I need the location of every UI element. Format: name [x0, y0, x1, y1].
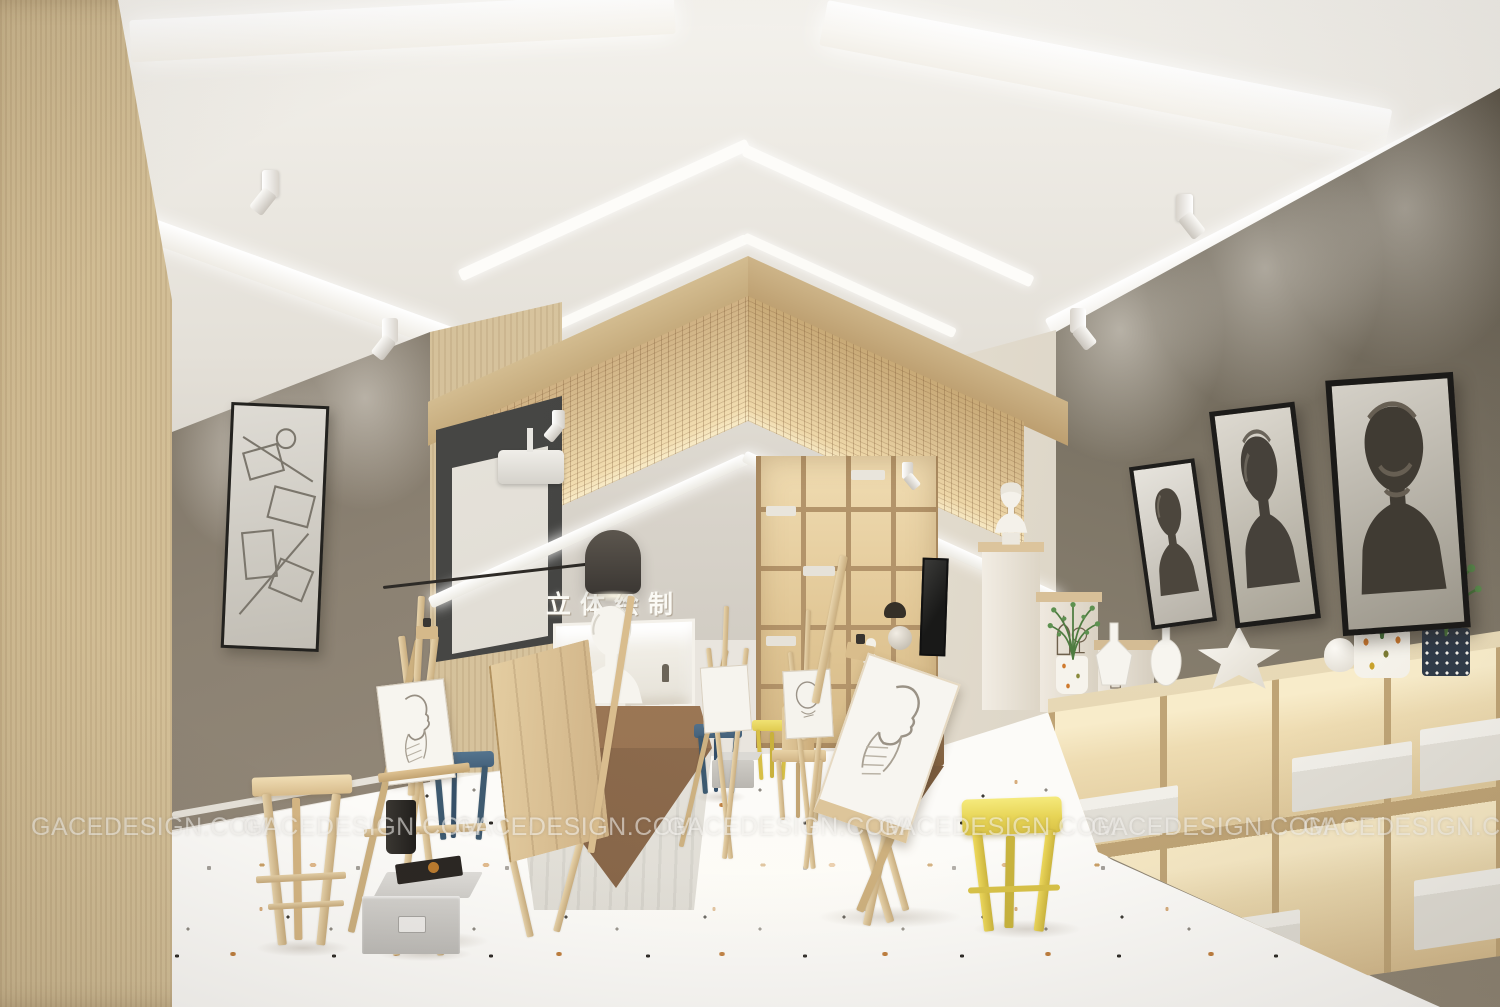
watermark: GACEDESIGN.COM: [243, 813, 482, 842]
plaster-bust-steps: [984, 478, 1038, 552]
stone-slab: [1292, 741, 1412, 813]
frame-bust-sketch: [1325, 372, 1471, 636]
shelf-slab: [803, 566, 835, 576]
easel-clamp: [416, 626, 438, 639]
shelving-art-frame: [919, 558, 948, 657]
watermark: GACEDESIGN.COM: [1303, 813, 1500, 842]
shelf-dome-lamp: [884, 602, 906, 618]
chair-leg: [796, 762, 800, 818]
easel-knob: [423, 618, 431, 627]
projector-mount: [527, 428, 533, 452]
shelf-slab: [766, 506, 796, 516]
white-vase-flask: [1144, 622, 1188, 692]
niche-bottle: [662, 664, 669, 682]
white-vase-round: [1324, 638, 1356, 672]
easel-knob: [856, 634, 865, 644]
display-step: [982, 548, 1040, 710]
stone-slab: [1414, 862, 1500, 951]
watermark: GACEDESIGN.COM: [879, 813, 1118, 842]
watermark: GACEDESIGN.COM: [667, 813, 906, 842]
white-vase-angular: [1090, 620, 1138, 692]
projector: [498, 450, 564, 484]
box-label: [398, 916, 426, 933]
art-studio-render: 立体绘制: [0, 0, 1500, 1007]
wall-lamp-shade: [585, 530, 641, 594]
shelf-slab: [766, 636, 796, 646]
stool-leg: [1004, 836, 1015, 928]
easel-canvas: [782, 669, 833, 739]
watermark: GACEDESIGN.COM: [1091, 813, 1330, 842]
watermark: GACEDESIGN.COM: [31, 813, 270, 842]
shelf-slab: [851, 470, 885, 480]
easel-canvas: [700, 664, 752, 733]
watermark: GACEDESIGN.COM: [455, 813, 694, 842]
shelf-sphere: [888, 626, 912, 650]
stone-slab: [1420, 712, 1500, 792]
frame-geometric-sketch: [221, 402, 330, 652]
